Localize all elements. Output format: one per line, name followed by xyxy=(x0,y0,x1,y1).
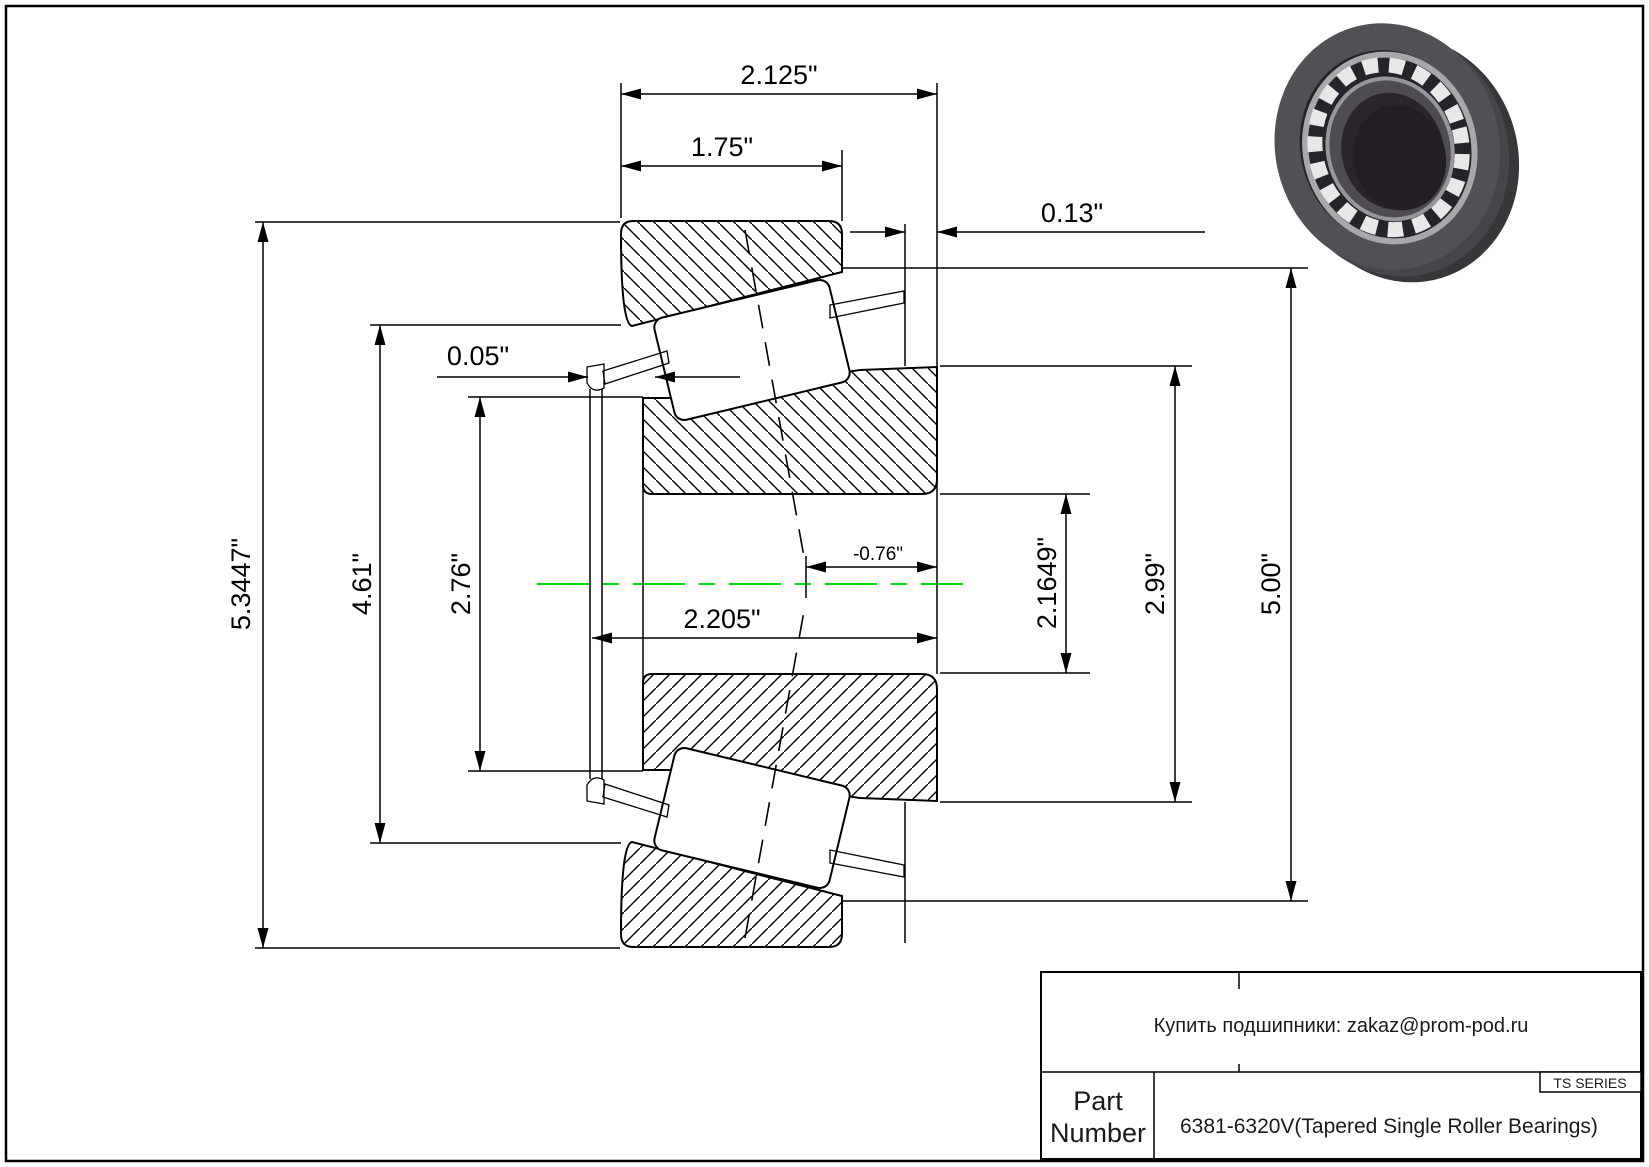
dim-cup-od: 5.00" xyxy=(1256,553,1286,615)
dim-effective-center: -0.76" xyxy=(853,544,903,565)
bearing-section-lower-half xyxy=(587,611,937,947)
dim-cage-standout: 0.13" xyxy=(1041,198,1103,228)
dim-cone-front-od: 2.76" xyxy=(446,553,476,615)
dim-cage-lip: 0.05" xyxy=(447,341,509,371)
dim-flange-od: 5.3447" xyxy=(226,538,256,630)
part-label-line1: Part xyxy=(1073,1086,1123,1116)
part-number-value: 6381-6320V(Tapered Single Roller Bearing… xyxy=(1180,1115,1598,1138)
contact-note: Купить подшипники: zakaz@prom-pod.ru xyxy=(1154,1015,1529,1037)
dim-cone-od: 2.99" xyxy=(1140,553,1170,615)
drawing-canvas: 2.125" 1.75" 0.13" 0.05" -0.76" 2.205" 5… xyxy=(0,0,1649,1167)
dim-bore: 2.1649" xyxy=(1032,537,1062,629)
dim-cup-front-width: 1.75" xyxy=(691,132,753,162)
bearing-section-upper-half xyxy=(587,221,937,557)
series-label: TS SERIES xyxy=(1553,1075,1626,1091)
dim-overall-width: 2.205" xyxy=(683,604,760,634)
bearing-3d-render xyxy=(1247,0,1546,312)
dim-cup-width: 2.125" xyxy=(740,60,817,90)
part-label-line2: Number xyxy=(1050,1118,1146,1148)
dim-cage-od: 4.61" xyxy=(347,553,377,615)
title-block: Купить подшипники: zakaz@prom-pod.ru TS … xyxy=(1041,972,1641,1159)
